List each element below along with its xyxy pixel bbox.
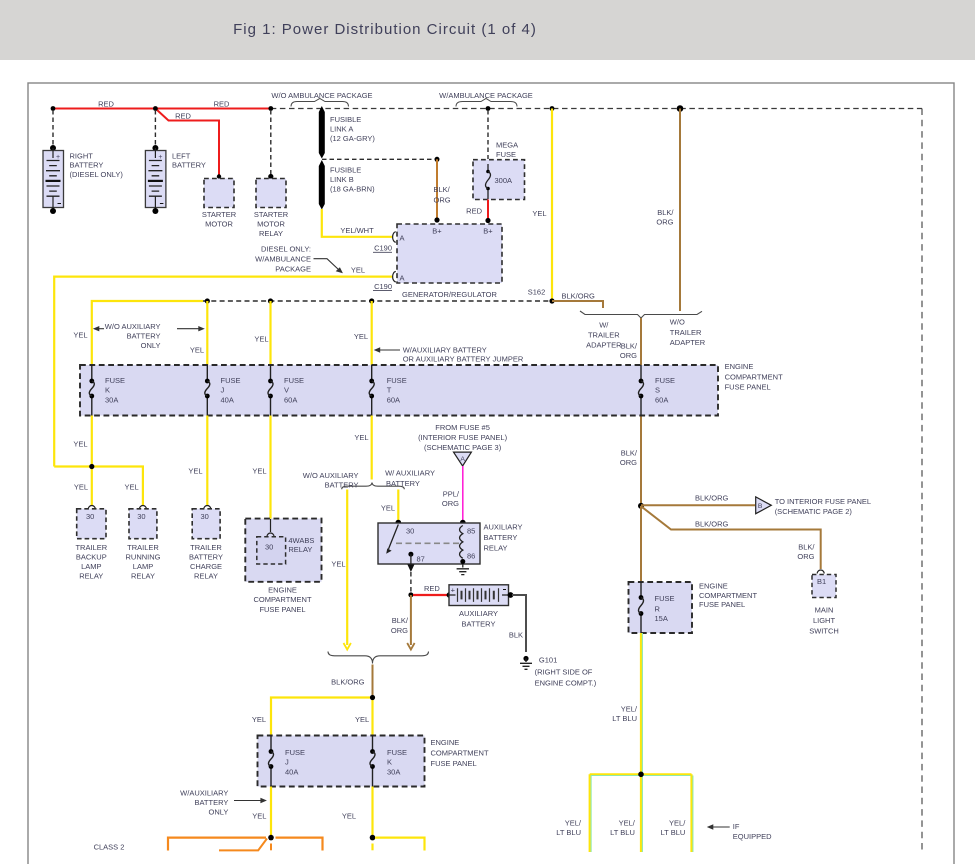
svg-text:YEL: YEL bbox=[331, 560, 345, 569]
svg-text:ORG: ORG bbox=[620, 458, 637, 467]
svg-text:BLK/: BLK/ bbox=[798, 543, 815, 552]
svg-text:60A: 60A bbox=[655, 395, 668, 404]
svg-text:86: 86 bbox=[467, 552, 475, 561]
svg-text:30: 30 bbox=[86, 512, 94, 521]
svg-text:B1: B1 bbox=[817, 577, 826, 586]
svg-text:YEL: YEL bbox=[73, 440, 87, 449]
svg-text:BATTERY: BATTERY bbox=[484, 533, 518, 542]
svg-text:YEL/: YEL/ bbox=[669, 819, 686, 828]
svg-text:A: A bbox=[400, 273, 405, 282]
svg-text:LEFT: LEFT bbox=[172, 151, 191, 160]
svg-text:FUSIBLE: FUSIBLE bbox=[330, 115, 361, 124]
svg-text:V: V bbox=[284, 386, 289, 395]
svg-text:BLK/ORG: BLK/ORG bbox=[695, 519, 729, 528]
svg-text:YEL/WHT: YEL/WHT bbox=[340, 226, 374, 235]
svg-text:PACKAGE: PACKAGE bbox=[275, 264, 311, 273]
svg-text:YEL/: YEL/ bbox=[619, 819, 636, 828]
svg-text:+: + bbox=[56, 154, 60, 161]
svg-text:(DIESEL ONLY): (DIESEL ONLY) bbox=[70, 170, 124, 179]
svg-text:B+: B+ bbox=[432, 227, 442, 236]
svg-text:(SCHEMATIC PAGE 2): (SCHEMATIC PAGE 2) bbox=[775, 507, 853, 516]
svg-text:+: + bbox=[451, 586, 456, 595]
svg-text:OR AUXILIARY BATTERY JUMPER: OR AUXILIARY BATTERY JUMPER bbox=[403, 355, 524, 364]
svg-text:60A: 60A bbox=[387, 395, 400, 404]
svg-text:BATTERY: BATTERY bbox=[127, 332, 161, 341]
svg-text:T: T bbox=[387, 386, 392, 395]
svg-text:Fig 1: Power Distribution Circ: Fig 1: Power Distribution Circuit (1 of … bbox=[233, 21, 537, 38]
svg-text:YEL: YEL bbox=[354, 332, 368, 341]
svg-text:YEL: YEL bbox=[190, 345, 204, 354]
svg-text:MOTOR: MOTOR bbox=[257, 220, 285, 229]
svg-text:15A: 15A bbox=[655, 614, 668, 623]
svg-text:LAMP: LAMP bbox=[133, 562, 153, 571]
svg-text:FUSE: FUSE bbox=[285, 748, 305, 757]
svg-text:FUSE: FUSE bbox=[284, 376, 304, 385]
svg-text:DIESEL ONLY:: DIESEL ONLY: bbox=[261, 245, 311, 254]
svg-text:BLK/: BLK/ bbox=[434, 185, 451, 194]
svg-text:RELAY: RELAY bbox=[259, 229, 283, 238]
svg-text:ADAPTER: ADAPTER bbox=[586, 341, 622, 350]
svg-text:G101: G101 bbox=[539, 656, 557, 665]
svg-text:YEL: YEL bbox=[74, 482, 88, 491]
svg-text:(RIGHT SIDE OF: (RIGHT SIDE OF bbox=[535, 668, 593, 677]
svg-text:YEL: YEL bbox=[342, 812, 356, 821]
svg-text:FUSE PANEL: FUSE PANEL bbox=[259, 605, 305, 614]
svg-text:RUNNING: RUNNING bbox=[126, 553, 161, 562]
svg-text:K: K bbox=[105, 386, 110, 395]
svg-text:BATTERY: BATTERY bbox=[70, 161, 104, 170]
svg-text:S: S bbox=[655, 386, 660, 395]
svg-text:300A: 300A bbox=[495, 176, 513, 185]
svg-text:RED: RED bbox=[424, 584, 440, 593]
svg-text:LINK B: LINK B bbox=[330, 175, 354, 184]
svg-text:J: J bbox=[221, 386, 225, 395]
svg-text:W/O AUXILIARY: W/O AUXILIARY bbox=[303, 471, 359, 480]
svg-text:30: 30 bbox=[265, 543, 273, 552]
svg-text:AUXILIARY: AUXILIARY bbox=[484, 522, 523, 531]
svg-text:BATTERY: BATTERY bbox=[386, 479, 420, 488]
svg-text:ENGINE: ENGINE bbox=[699, 582, 728, 591]
svg-text:TRAILER: TRAILER bbox=[127, 543, 159, 552]
svg-text:K: K bbox=[387, 758, 392, 767]
svg-text:W/O: W/O bbox=[670, 318, 685, 327]
svg-text:MOTOR: MOTOR bbox=[205, 220, 233, 229]
svg-text:S162: S162 bbox=[528, 288, 546, 297]
svg-text:TRAILER: TRAILER bbox=[190, 543, 222, 552]
svg-text:RED: RED bbox=[98, 100, 114, 109]
svg-text:W/AMBULANCE: W/AMBULANCE bbox=[255, 255, 311, 264]
svg-text:(12 GA-GRY): (12 GA-GRY) bbox=[330, 134, 375, 143]
svg-text:FUSE: FUSE bbox=[221, 376, 241, 385]
svg-text:FUSE PANEL: FUSE PANEL bbox=[725, 383, 771, 392]
svg-text:YEL: YEL bbox=[355, 715, 369, 724]
svg-text:30: 30 bbox=[201, 512, 209, 521]
svg-text:YEL: YEL bbox=[125, 482, 139, 491]
svg-text:RELAY: RELAY bbox=[484, 543, 508, 552]
svg-text:+: + bbox=[158, 154, 162, 161]
svg-text:GENERATOR/REGULATOR: GENERATOR/REGULATOR bbox=[402, 290, 497, 299]
svg-text:4WABS: 4WABS bbox=[288, 536, 314, 545]
svg-text:30: 30 bbox=[137, 512, 145, 521]
svg-text:ONLY: ONLY bbox=[209, 807, 229, 816]
svg-text:ADAPTER: ADAPTER bbox=[670, 338, 706, 347]
svg-text:87: 87 bbox=[417, 555, 425, 564]
svg-text:C190: C190 bbox=[374, 282, 392, 291]
svg-text:BATTERY: BATTERY bbox=[462, 619, 496, 628]
svg-text:YEL/: YEL/ bbox=[565, 819, 582, 828]
svg-text:YEL: YEL bbox=[252, 715, 266, 724]
svg-text:BLK/: BLK/ bbox=[657, 208, 674, 217]
svg-text:SWITCH: SWITCH bbox=[809, 627, 839, 636]
svg-text:AUXILIARY: AUXILIARY bbox=[459, 609, 498, 618]
svg-text:YEL: YEL bbox=[354, 433, 368, 442]
svg-text:BATTERY: BATTERY bbox=[172, 161, 206, 170]
svg-text:FUSE PANEL: FUSE PANEL bbox=[431, 759, 477, 768]
svg-text:YEL: YEL bbox=[532, 209, 546, 218]
svg-text:ORG: ORG bbox=[434, 196, 451, 205]
svg-text:W/AUXILIARY: W/AUXILIARY bbox=[180, 789, 228, 798]
svg-text:EQUIPPED: EQUIPPED bbox=[733, 832, 772, 841]
svg-text:FUSE: FUSE bbox=[655, 594, 675, 603]
svg-text:60A: 60A bbox=[284, 395, 297, 404]
svg-text:LT BLU: LT BLU bbox=[612, 714, 637, 723]
svg-text:CHARGE: CHARGE bbox=[190, 562, 222, 571]
svg-text:YEL: YEL bbox=[73, 330, 87, 339]
svg-text:BATTERY: BATTERY bbox=[189, 553, 223, 562]
svg-text:BLK/: BLK/ bbox=[392, 616, 409, 625]
svg-text:30: 30 bbox=[406, 527, 414, 536]
svg-text:YEL: YEL bbox=[252, 812, 266, 821]
svg-text:RED: RED bbox=[466, 207, 482, 216]
svg-text:ORG: ORG bbox=[656, 218, 673, 227]
svg-text:COMPARTMENT: COMPARTMENT bbox=[431, 749, 489, 758]
svg-text:ONLY: ONLY bbox=[141, 341, 161, 350]
svg-text:STARTER: STARTER bbox=[202, 210, 237, 219]
svg-text:YEL: YEL bbox=[252, 467, 266, 476]
svg-text:ORG: ORG bbox=[620, 351, 637, 360]
svg-text:MAIN: MAIN bbox=[815, 606, 834, 615]
svg-text:RED: RED bbox=[214, 100, 230, 109]
svg-text:ENGINE: ENGINE bbox=[431, 738, 460, 747]
svg-text:W/O AMBULANCE PACKAGE: W/O AMBULANCE PACKAGE bbox=[271, 91, 372, 100]
svg-text:COMPARTMENT: COMPARTMENT bbox=[725, 372, 783, 381]
svg-text:FUSE: FUSE bbox=[496, 150, 516, 159]
svg-text:LAMP: LAMP bbox=[81, 562, 101, 571]
svg-text:LT BLU: LT BLU bbox=[556, 828, 581, 837]
svg-text:TO INTERIOR FUSE PANEL: TO INTERIOR FUSE PANEL bbox=[775, 497, 871, 506]
svg-text:40A: 40A bbox=[285, 767, 298, 776]
svg-text:ORG: ORG bbox=[797, 552, 814, 561]
svg-text:BACKUP: BACKUP bbox=[76, 553, 107, 562]
svg-text:BATTERY: BATTERY bbox=[325, 480, 359, 489]
svg-text:BATTERY: BATTERY bbox=[194, 798, 228, 807]
svg-text:30A: 30A bbox=[387, 767, 400, 776]
svg-text:ENGINE: ENGINE bbox=[725, 362, 754, 371]
svg-text:RELAY: RELAY bbox=[131, 572, 155, 581]
svg-text:FUSE: FUSE bbox=[105, 376, 125, 385]
svg-text:A: A bbox=[400, 234, 405, 243]
svg-text:STARTER: STARTER bbox=[254, 210, 289, 219]
svg-text:LINK A: LINK A bbox=[330, 124, 353, 133]
svg-text:FUSIBLE: FUSIBLE bbox=[330, 166, 361, 175]
svg-text:RED: RED bbox=[175, 112, 191, 121]
svg-text:W/: W/ bbox=[599, 321, 609, 330]
svg-text:RELAY: RELAY bbox=[79, 572, 103, 581]
svg-text:R: R bbox=[655, 605, 661, 614]
svg-text:FROM FUSE #5: FROM FUSE #5 bbox=[435, 423, 490, 432]
svg-text:FUSE PANEL: FUSE PANEL bbox=[699, 600, 745, 609]
svg-text:85: 85 bbox=[467, 527, 475, 536]
svg-text:FUSE: FUSE bbox=[655, 376, 675, 385]
svg-text:YEL: YEL bbox=[188, 467, 202, 476]
svg-text:(18 GA-BRN): (18 GA-BRN) bbox=[330, 184, 375, 193]
svg-text:TRAILER: TRAILER bbox=[588, 331, 620, 340]
svg-text:YEL/: YEL/ bbox=[621, 704, 638, 713]
svg-text:LT BLU: LT BLU bbox=[661, 828, 686, 837]
svg-text:A: A bbox=[460, 456, 465, 463]
svg-text:BLK/ORG: BLK/ORG bbox=[331, 678, 365, 687]
svg-text:COMPARTMENT: COMPARTMENT bbox=[253, 595, 311, 604]
svg-text:BLK/: BLK/ bbox=[621, 449, 638, 458]
svg-text:FUSE: FUSE bbox=[387, 376, 407, 385]
svg-text:40A: 40A bbox=[221, 395, 234, 404]
svg-text:BLK/ORG: BLK/ORG bbox=[562, 292, 596, 301]
svg-text:LT BLU: LT BLU bbox=[610, 828, 635, 837]
svg-text:ORG: ORG bbox=[442, 499, 459, 508]
svg-text:W/AUXILIARY BATTERY: W/AUXILIARY BATTERY bbox=[403, 346, 487, 355]
svg-text:CLASS 2: CLASS 2 bbox=[94, 843, 125, 852]
svg-text:C190: C190 bbox=[374, 244, 392, 253]
svg-text:W/O AUXILIARY: W/O AUXILIARY bbox=[105, 322, 161, 331]
svg-text:BLK: BLK bbox=[509, 631, 523, 640]
svg-text:IF: IF bbox=[733, 822, 740, 831]
svg-text:B+: B+ bbox=[483, 227, 493, 236]
svg-text:J: J bbox=[285, 758, 289, 767]
svg-text:TRAILER: TRAILER bbox=[75, 543, 107, 552]
svg-text:BLK/ORG: BLK/ORG bbox=[695, 493, 729, 502]
svg-text:B: B bbox=[758, 503, 763, 510]
svg-text:YEL: YEL bbox=[381, 504, 395, 513]
svg-text:(INTERIOR FUSE PANEL): (INTERIOR FUSE PANEL) bbox=[418, 433, 508, 442]
svg-text:LIGHT: LIGHT bbox=[813, 616, 836, 625]
svg-text:ENGINE COMPT.): ENGINE COMPT.) bbox=[535, 679, 597, 688]
svg-text:ENGINE: ENGINE bbox=[268, 585, 297, 594]
svg-text:YEL: YEL bbox=[351, 266, 365, 275]
svg-text:COMPARTMENT: COMPARTMENT bbox=[699, 591, 757, 600]
svg-text:(SCHEMATIC PAGE 3): (SCHEMATIC PAGE 3) bbox=[424, 443, 502, 452]
svg-text:FUSE: FUSE bbox=[387, 748, 407, 757]
svg-text:RELAY: RELAY bbox=[288, 545, 312, 554]
svg-text:TRAILER: TRAILER bbox=[670, 328, 702, 337]
svg-text:W/ AUXILIARY: W/ AUXILIARY bbox=[385, 469, 435, 478]
svg-text:RIGHT: RIGHT bbox=[70, 151, 94, 160]
svg-text:BLK/: BLK/ bbox=[621, 342, 638, 351]
svg-text:PPL/: PPL/ bbox=[443, 489, 460, 498]
svg-text:MEGA: MEGA bbox=[496, 141, 518, 150]
svg-text:YEL: YEL bbox=[254, 334, 268, 343]
svg-text:30A: 30A bbox=[105, 395, 118, 404]
svg-text:ORG: ORG bbox=[391, 626, 408, 635]
svg-text:RELAY: RELAY bbox=[194, 572, 218, 581]
